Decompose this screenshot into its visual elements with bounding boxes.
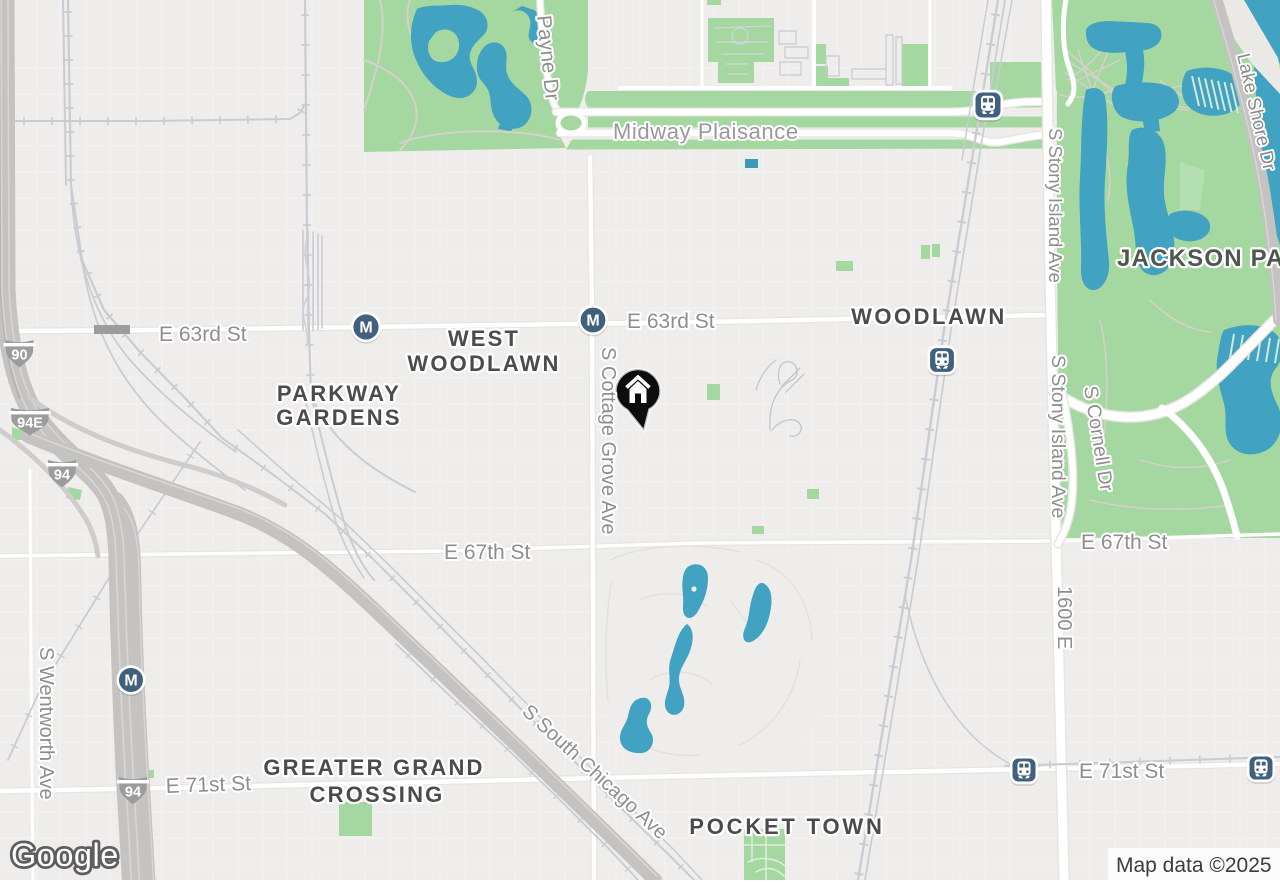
svg-text:94: 94 [125, 785, 141, 801]
svg-text:M: M [586, 313, 599, 330]
svg-text:S Stony Island Ave: S Stony Island Ave [1045, 128, 1066, 283]
svg-text:E 71st St: E 71st St [165, 772, 251, 798]
svg-text:WOODLAWN: WOODLAWN [851, 304, 1007, 329]
svg-text:E 63rd St: E 63rd St [159, 323, 247, 346]
svg-text:POCKET TOWN: POCKET TOWN [689, 814, 884, 839]
svg-text:M: M [124, 673, 137, 690]
svg-text:WEST: WEST [448, 326, 520, 351]
svg-text:CROSSING: CROSSING [310, 782, 445, 807]
svg-text:WOODLAWN: WOODLAWN [407, 351, 560, 376]
svg-text:1600 E: 1600 E [1053, 586, 1075, 649]
svg-text:E 67th St: E 67th St [1081, 531, 1168, 554]
svg-text:M: M [359, 320, 372, 337]
svg-text:S Stony Island Ave: S Stony Island Ave [1047, 355, 1069, 518]
svg-text:Map data ©2025: Map data ©2025 [1116, 854, 1272, 877]
svg-text:GARDENS: GARDENS [276, 405, 401, 430]
svg-text:90: 90 [11, 348, 27, 364]
svg-text:S Cottage Grove Ave: S Cottage Grove Ave [597, 347, 619, 535]
svg-text:E 63rd St: E 63rd St [627, 310, 715, 333]
svg-text:JACKSON PARK: JACKSON PARK [1117, 245, 1280, 272]
svg-text:S Wentworth Ave: S Wentworth Ave [35, 647, 57, 800]
svg-text:Midway Plaisance: Midway Plaisance [613, 119, 799, 144]
svg-text:E 67th St: E 67th St [444, 541, 531, 564]
svg-text:E 71st St: E 71st St [1079, 760, 1164, 783]
svg-text:PARKWAY: PARKWAY [277, 381, 401, 406]
svg-text:94: 94 [54, 468, 70, 484]
svg-text:GREATER GRAND: GREATER GRAND [263, 755, 484, 780]
svg-text:94E: 94E [17, 416, 43, 432]
svg-text:Google: Google [11, 837, 119, 873]
